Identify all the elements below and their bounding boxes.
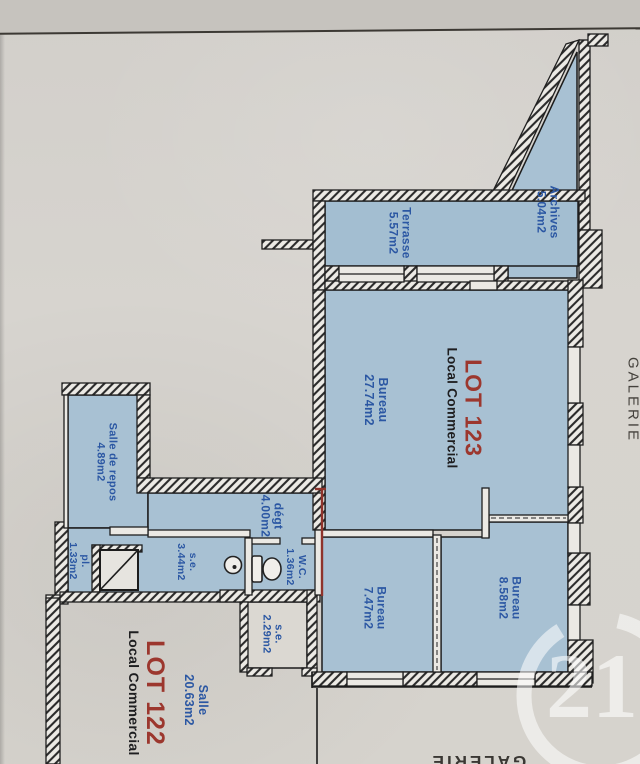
room-label-se-bas: s.e. 2.29m2	[260, 614, 285, 653]
room-name: Salle	[196, 685, 210, 716]
lot122-label: LOT 122 Local Commercial	[125, 630, 169, 755]
century21-watermark: 21	[524, 619, 640, 764]
room-name: Archives	[547, 185, 560, 238]
wall-bottom-2	[403, 672, 477, 686]
room-label-degt: dégt 4.00m2	[258, 495, 285, 538]
lot-type: Local Commercial	[445, 347, 460, 468]
room-name: s.e.	[186, 553, 198, 572]
toilet-tank	[252, 556, 262, 582]
partition-wc-1	[250, 538, 280, 544]
room-label-wc: W.C. 1.36m2	[283, 548, 307, 585]
room-name: Bureau	[376, 378, 390, 423]
partition-repos-left	[64, 395, 68, 528]
wall-repos-right	[137, 395, 150, 478]
room-name: Bureau	[509, 576, 522, 619]
partition-main-stub	[482, 488, 489, 538]
room-name: dégt	[271, 503, 284, 530]
room-name: Bureau	[374, 586, 387, 629]
floor-plan-drawing: 21	[0, 0, 640, 764]
room-label-salle: Salle 20.63m2	[182, 674, 210, 725]
room-name: Salle de repos	[106, 423, 118, 502]
wall-right-1	[568, 280, 583, 347]
wall-terrasse-left	[313, 201, 325, 290]
room-area: 27.74m2	[362, 374, 376, 425]
room-area: 5.57m2	[386, 212, 399, 255]
room-area: 3.44m2	[174, 543, 186, 580]
century21-number: 21	[546, 635, 638, 737]
wall-se-bas-bottom-1	[247, 668, 272, 676]
partition-repos-bottom	[110, 527, 148, 535]
wall-se-bas-top	[220, 590, 320, 602]
wall-archives-notch	[588, 34, 608, 46]
partition-bureau747-top	[322, 530, 433, 537]
wall-lot122-top	[60, 592, 245, 602]
wall-se-bas-left	[240, 602, 248, 672]
wall-terrasse-stub	[262, 240, 313, 249]
room-label-pl: pl. 1.33m2	[66, 542, 90, 579]
washbasin-drain	[233, 565, 237, 569]
room-area: 7.47m2	[361, 587, 374, 630]
wall-terrasse-sill-3	[494, 266, 508, 282]
room-area: 5.04m2	[534, 191, 547, 234]
room-name: W.C.	[295, 555, 307, 579]
wall-bottom-1	[312, 672, 347, 686]
room-area: 8.58m2	[496, 577, 509, 620]
room-area: 1.36m2	[283, 548, 295, 585]
room-label-se-haut: s.e. 3.44m2	[174, 543, 198, 580]
partition-se-wc	[245, 538, 252, 595]
room-area: 20.63m2	[182, 674, 196, 725]
washbasin-icon	[225, 557, 242, 574]
room-label-bureau-858: Bureau 8.58m2	[496, 576, 523, 619]
room-name: Terrasse	[399, 207, 412, 259]
room-label-terrasse: Terrasse 5.57m2	[386, 207, 413, 259]
wall-outer-left-lower	[46, 598, 60, 764]
partition-se-corridor	[148, 530, 250, 537]
lot-type: Local Commercial	[125, 630, 141, 755]
room-label-salle-de-repos: Salle de repos 4.89m2	[94, 423, 119, 502]
toilet-icon	[263, 558, 281, 580]
wall-corridor-top	[137, 478, 322, 493]
lot123-label: LOT 123 Local Commercial	[445, 347, 486, 468]
wall-right-4	[568, 553, 590, 605]
lot-id: LOT 123	[460, 359, 486, 457]
galerie-bottom-label: GALERIE	[430, 751, 527, 764]
room-name: pl.	[78, 554, 90, 567]
room-area: 2.29m2	[260, 614, 272, 653]
galerie-right-label: GALERIE	[625, 357, 640, 443]
window-right-3	[568, 523, 580, 553]
room-name: s.e.	[272, 624, 284, 644]
wall-archives-right-low	[579, 230, 602, 288]
room-label-bureau-747: Bureau 7.47m2	[361, 586, 388, 629]
wall-terrasse-sill-1	[325, 266, 339, 282]
floor-plan-photo: 21 Archives 5.04m2 Terrasse 5.57m2 Burea…	[0, 0, 640, 764]
wall-se-bas-right	[307, 590, 317, 672]
room-area: 1.33m2	[66, 542, 78, 579]
window-right-2	[568, 445, 580, 487]
wall-repos-top	[62, 383, 150, 395]
room-area: 4.89m2	[94, 442, 106, 481]
wall-closet-left	[92, 545, 100, 592]
room-label-archives: Archives 5.04m2	[534, 185, 561, 238]
wall-terrasse-sill-2	[404, 266, 417, 282]
room-area: 4.00m2	[258, 495, 271, 538]
lot-id: LOT 122	[141, 640, 169, 746]
door-main-top	[470, 281, 497, 290]
window-right-1	[568, 347, 580, 403]
wall-right-2	[568, 403, 583, 445]
wall-main-left	[313, 290, 325, 530]
room-label-bureau-main: Bureau 27.74m2	[362, 374, 390, 425]
wall-right-3	[568, 487, 583, 523]
